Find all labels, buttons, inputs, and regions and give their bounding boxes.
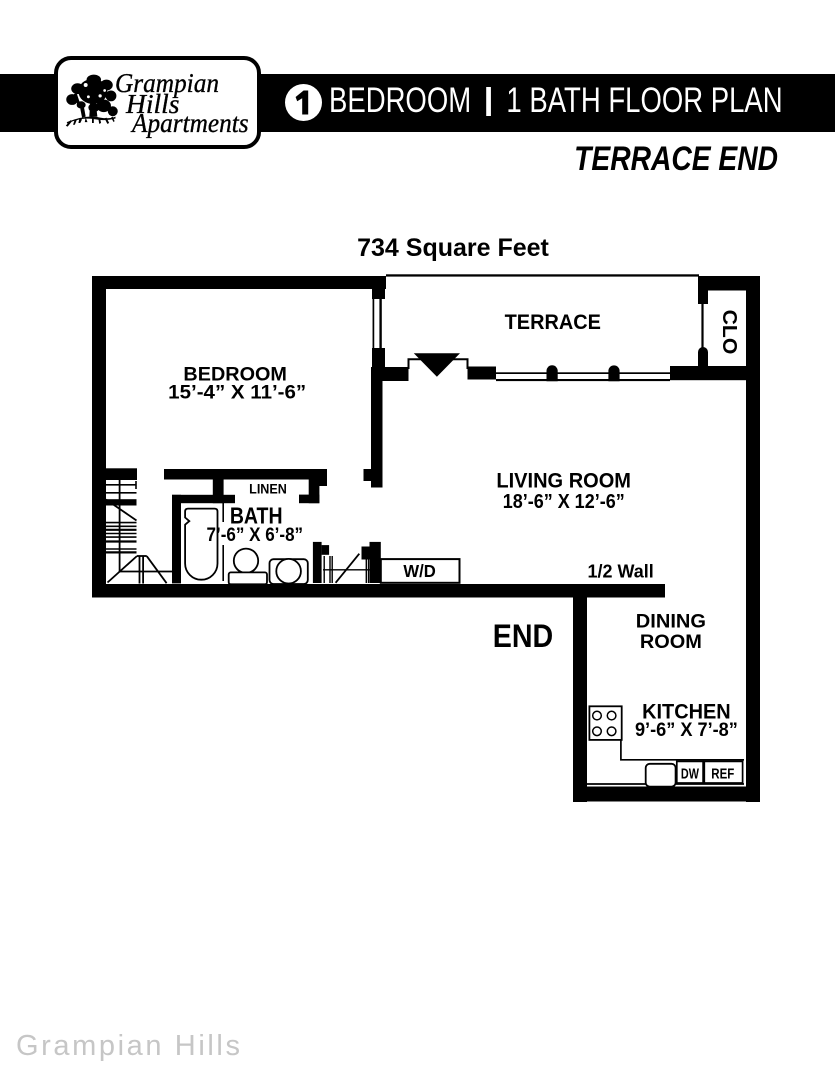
- svg-text:7’-6” X 6’-8”: 7’-6” X 6’-8”: [207, 525, 304, 546]
- svg-text:LIVING ROOM: LIVING ROOM: [496, 470, 631, 493]
- svg-text:TERRACE: TERRACE: [505, 311, 601, 334]
- svg-text:ROOM: ROOM: [640, 632, 702, 653]
- svg-text:18’-6” X 12’-6”: 18’-6” X 12’-6”: [503, 491, 625, 513]
- svg-text:DW: DW: [681, 765, 700, 782]
- svg-text:9’-6” X 7’-8”: 9’-6” X 7’-8”: [635, 719, 738, 741]
- svg-text:CLO: CLO: [718, 310, 740, 355]
- svg-text:15’-4” X 11’-6”: 15’-4” X 11’-6”: [168, 382, 306, 404]
- svg-text:END: END: [493, 618, 553, 654]
- svg-text:LINEN: LINEN: [249, 480, 287, 496]
- svg-text:REF: REF: [711, 765, 734, 782]
- svg-text:W/D: W/D: [403, 561, 436, 581]
- svg-text:1/2 Wall: 1/2 Wall: [588, 561, 654, 582]
- svg-text:DINING: DINING: [636, 612, 706, 633]
